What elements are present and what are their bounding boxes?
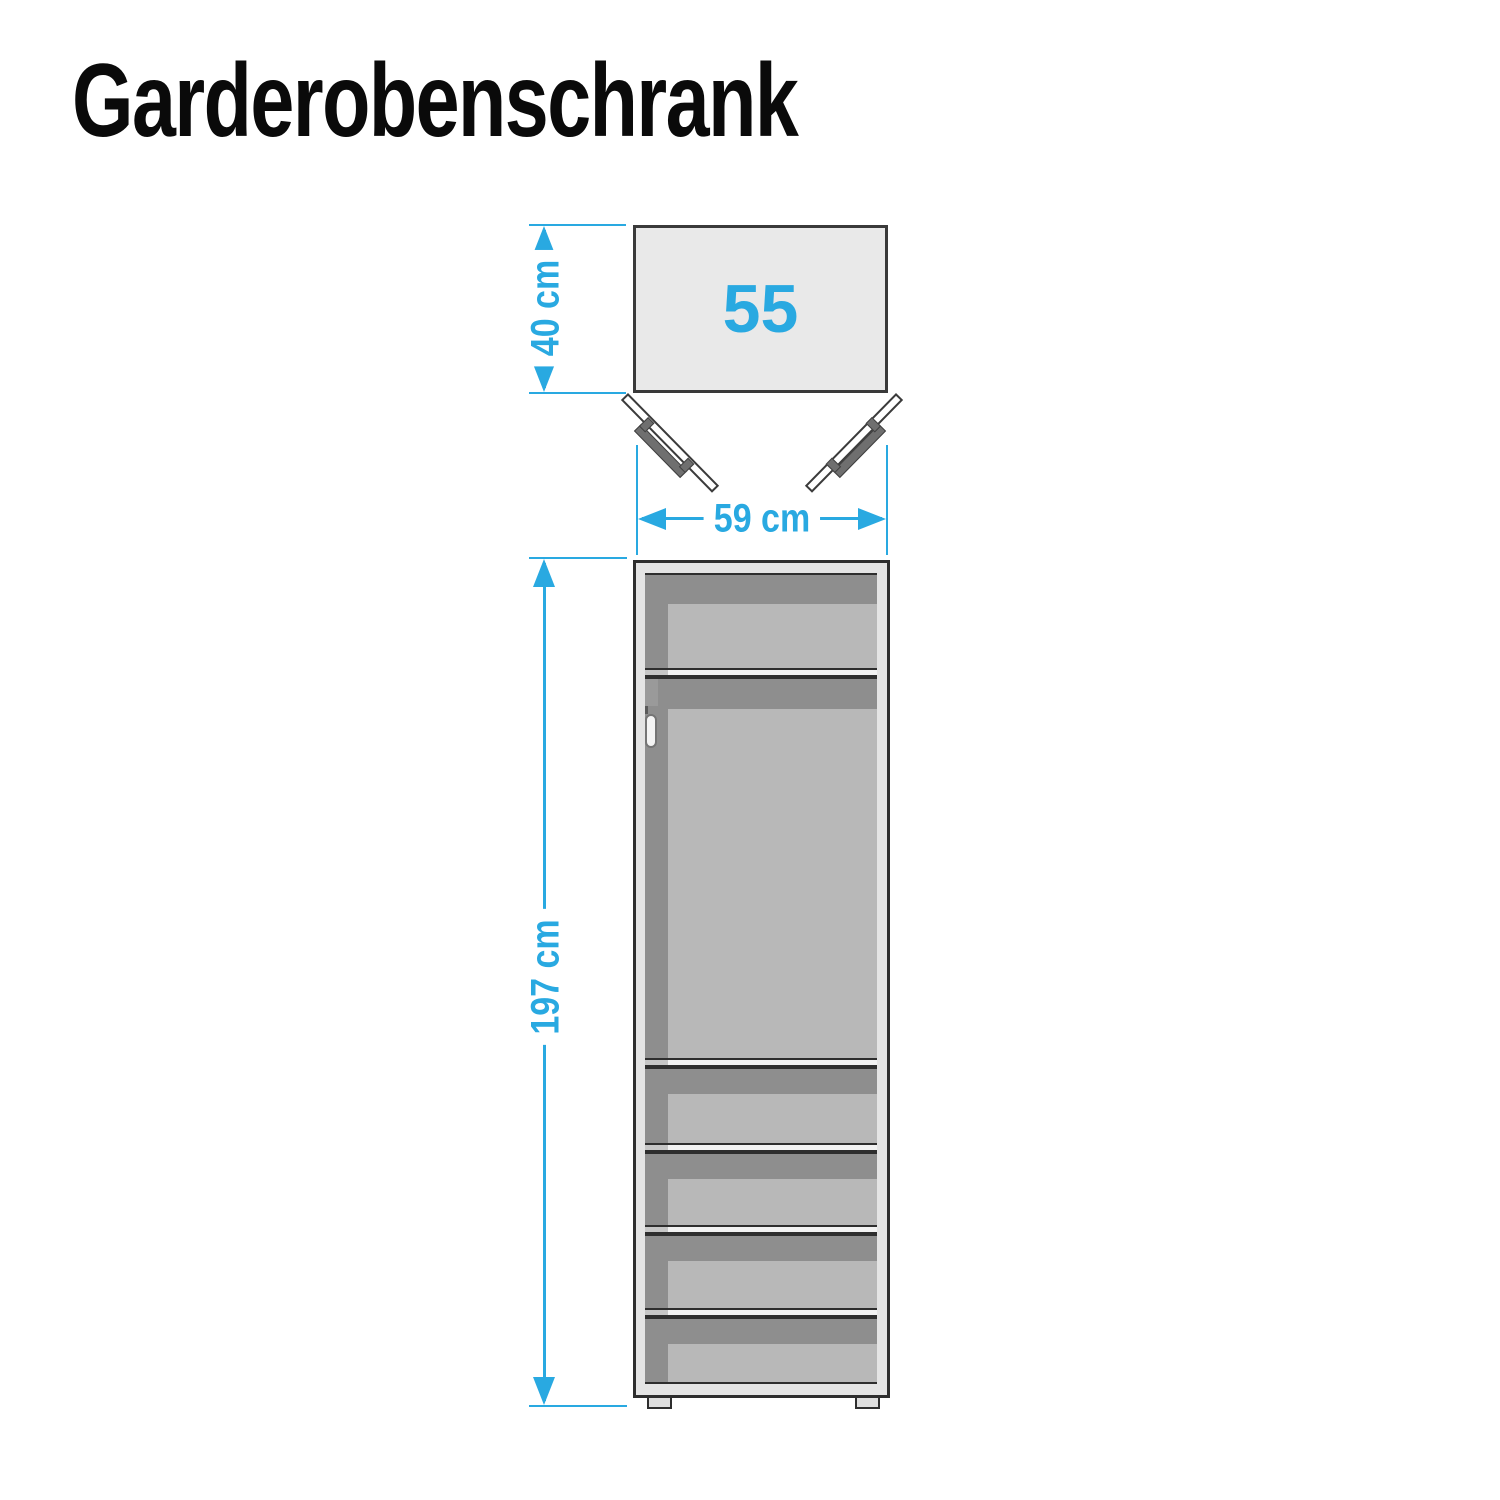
clothes-rail-icon xyxy=(645,714,657,748)
shelf-compartment-2 xyxy=(645,1152,877,1225)
compartment-interior xyxy=(668,1179,877,1225)
shelf-compartment-4 xyxy=(645,1317,877,1382)
cabinet-foot-left xyxy=(647,1396,672,1409)
arrow-left-icon xyxy=(638,508,666,530)
width-dimension-label: 59 cm xyxy=(704,495,821,544)
compartment-interior xyxy=(668,709,877,1058)
arrow-down-icon xyxy=(533,364,555,392)
shelf-compartment-3 xyxy=(645,1234,877,1308)
cabinet-foot-right xyxy=(855,1396,880,1409)
open-door-right xyxy=(805,393,903,493)
compartment-interior xyxy=(668,1344,877,1382)
top-view-compartment-label: 55 xyxy=(723,270,799,348)
arrow-down-icon xyxy=(533,1377,555,1405)
arrow-up-icon xyxy=(533,559,555,587)
compartment-interior xyxy=(668,604,877,668)
extension-line xyxy=(636,445,638,555)
dimension-diagram: Garderobenschrank 55 40 cm 59 cm xyxy=(0,0,1500,1500)
shelf xyxy=(645,1143,877,1152)
shelf xyxy=(645,1225,877,1234)
top-compartment xyxy=(645,573,877,668)
rail-shadow xyxy=(645,679,658,706)
compartment-interior xyxy=(668,1261,877,1308)
extension-line xyxy=(886,445,888,555)
shelf xyxy=(645,668,877,677)
top-view-body: 55 xyxy=(633,225,888,393)
shelf xyxy=(645,1058,877,1067)
cabinet-body xyxy=(633,560,890,1398)
clothes-rail-mount xyxy=(645,706,648,714)
shelf xyxy=(645,1308,877,1317)
shelf-compartment-1 xyxy=(645,1067,877,1143)
plinth-edge xyxy=(645,1382,877,1384)
page-title: Garderobenschrank xyxy=(72,42,797,161)
extension-line xyxy=(529,1405,627,1407)
arrow-right-icon xyxy=(858,508,886,530)
extension-line xyxy=(529,392,626,394)
compartment-interior xyxy=(668,1094,877,1143)
depth-dimension-label: 40 cm xyxy=(522,250,571,367)
height-dimension-label: 197 cm xyxy=(522,909,571,1045)
hanging-compartment xyxy=(645,677,877,1058)
